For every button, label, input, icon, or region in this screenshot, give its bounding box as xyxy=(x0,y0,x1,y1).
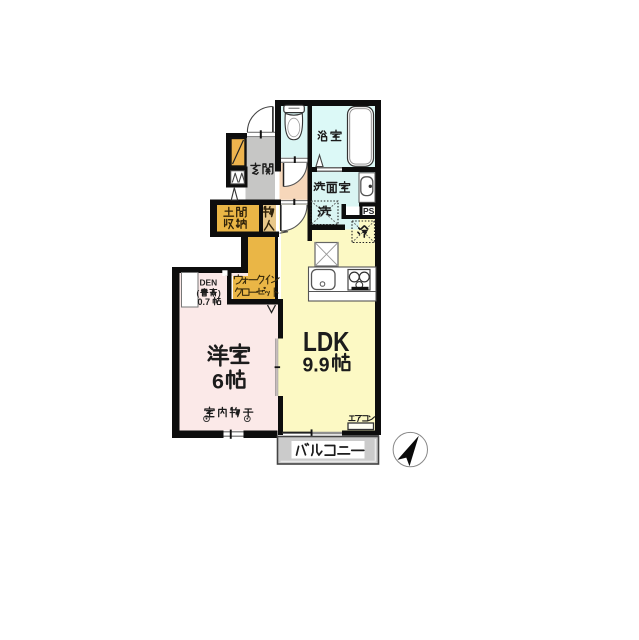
svg-text:DEN: DEN xyxy=(200,278,218,288)
svg-text:PS: PS xyxy=(363,206,375,216)
svg-text:9.9: 9.9 xyxy=(303,354,330,377)
svg-text:6: 6 xyxy=(212,370,224,394)
svg-text:): ) xyxy=(218,289,221,298)
svg-text:LDK: LDK xyxy=(303,326,350,357)
svg-text:0.7: 0.7 xyxy=(198,297,211,307)
